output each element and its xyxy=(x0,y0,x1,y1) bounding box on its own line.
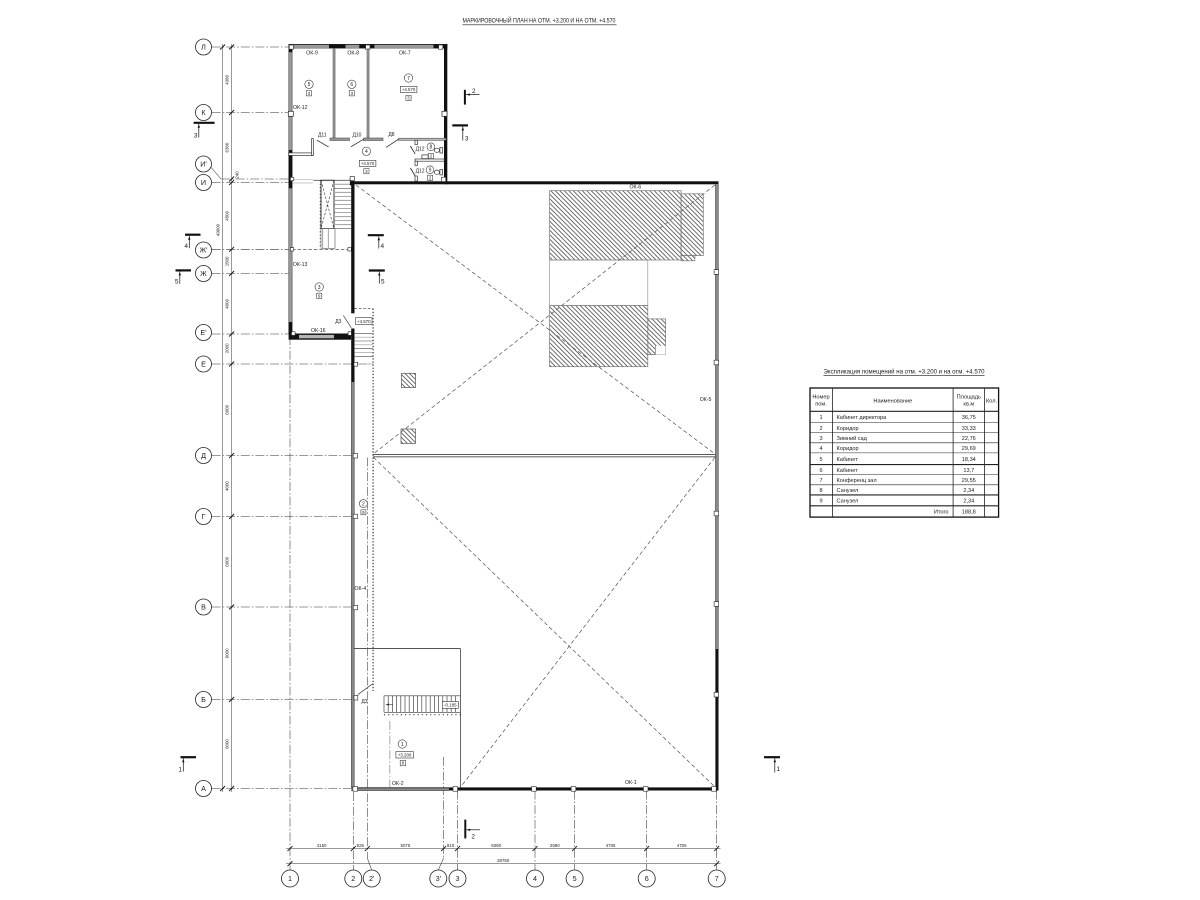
svg-text:Коридор: Коридор xyxy=(837,446,859,452)
svg-text:5: 5 xyxy=(308,82,311,88)
svg-text:И: И xyxy=(201,178,206,187)
svg-text:49000: 49000 xyxy=(216,223,221,236)
svg-text:Е: Е xyxy=(201,360,206,369)
svg-text:Кабинет: Кабинет xyxy=(837,468,859,474)
svg-text:Д8: Д8 xyxy=(388,132,394,138)
svg-text:3: 3 xyxy=(318,285,321,291)
svg-text:ОК-4: ОК-4 xyxy=(355,586,367,592)
svg-text:2,34: 2,34 xyxy=(963,488,974,494)
svg-text:пом.: пом. xyxy=(815,402,827,408)
svg-text:И': И' xyxy=(200,160,207,169)
svg-text:28750: 28750 xyxy=(497,858,510,863)
svg-text:29,69: 29,69 xyxy=(962,446,976,452)
svg-text:Площадь: Площадь xyxy=(957,394,981,400)
svg-text:ОК-5: ОК-5 xyxy=(700,397,712,403)
svg-text:-0.185: -0.185 xyxy=(444,703,457,708)
svg-text:2: 2 xyxy=(351,874,355,883)
svg-text:3: 3 xyxy=(194,132,198,139)
svg-text:33,33: 33,33 xyxy=(962,426,976,432)
svg-text:4: 4 xyxy=(533,874,537,883)
svg-text:5: 5 xyxy=(573,874,577,883)
svg-text:Д11: Д11 xyxy=(318,133,327,139)
svg-text:ОК-2: ОК-2 xyxy=(392,781,404,787)
svg-text:22,76: 22,76 xyxy=(962,436,976,442)
svg-text:6000: 6000 xyxy=(225,648,230,658)
svg-text:1: 1 xyxy=(777,766,781,773)
svg-text:А: А xyxy=(201,784,206,793)
svg-text:ОК-12: ОК-12 xyxy=(293,105,308,111)
svg-text:Д12: Д12 xyxy=(416,146,425,152)
svg-text:5: 5 xyxy=(175,278,179,285)
svg-text:9: 9 xyxy=(429,168,432,174)
svg-text:8: 8 xyxy=(819,488,822,494)
svg-text:Г: Г xyxy=(202,512,206,521)
svg-text:5090: 5090 xyxy=(491,843,501,848)
svg-text:4: 4 xyxy=(365,149,368,155)
svg-text:1: 1 xyxy=(179,766,183,773)
svg-text:Кабинет: Кабинет xyxy=(837,457,859,463)
svg-text:Наименование: Наименование xyxy=(873,399,912,405)
svg-text:1500: 1500 xyxy=(225,256,230,266)
svg-text:2590: 2590 xyxy=(550,843,560,848)
svg-text:+3.200: +3.200 xyxy=(398,753,412,758)
svg-text:Д10: Д10 xyxy=(353,133,362,139)
svg-text:Д3: Д3 xyxy=(335,319,341,325)
svg-text:2: 2 xyxy=(471,834,475,841)
svg-text:18,34: 18,34 xyxy=(962,457,976,463)
svg-text:Зимний сад: Зимний сад xyxy=(837,435,868,442)
svg-text:6: 6 xyxy=(645,874,649,883)
svg-text:13,7: 13,7 xyxy=(963,468,974,474)
svg-text:240: 240 xyxy=(235,171,240,179)
svg-text:9: 9 xyxy=(819,499,822,505)
svg-text:Ж': Ж' xyxy=(199,246,208,255)
svg-text:6000: 6000 xyxy=(225,404,230,414)
svg-text:6: 6 xyxy=(350,82,353,88)
svg-text:3': 3' xyxy=(436,874,442,883)
svg-text:+4.570: +4.570 xyxy=(361,161,375,166)
svg-text:Коридор: Коридор xyxy=(837,426,859,432)
svg-text:ОК-9: ОК-9 xyxy=(306,51,318,57)
svg-text:Кабинет директора: Кабинет директора xyxy=(837,415,888,421)
svg-text:2': 2' xyxy=(369,874,375,883)
svg-text:3: 3 xyxy=(819,436,822,442)
svg-text:2: 2 xyxy=(819,426,822,432)
svg-text:8: 8 xyxy=(430,145,433,151)
svg-text:кв.м: кв.м xyxy=(963,402,974,408)
svg-text:Д12: Д12 xyxy=(416,168,425,174)
svg-text:4: 4 xyxy=(819,446,822,452)
svg-text:6: 6 xyxy=(819,468,822,474)
svg-text:6000: 6000 xyxy=(225,556,230,566)
svg-text:4150: 4150 xyxy=(317,843,327,848)
svg-text:4705: 4705 xyxy=(677,843,687,848)
svg-text:Итого: Итого xyxy=(934,509,949,515)
svg-text:6380: 6380 xyxy=(225,142,230,152)
svg-text:4500: 4500 xyxy=(225,210,230,220)
svg-text:3: 3 xyxy=(456,874,460,883)
svg-text:2: 2 xyxy=(362,501,365,507)
svg-text:4: 4 xyxy=(184,243,188,250)
svg-text:3: 3 xyxy=(465,135,469,142)
svg-text:5: 5 xyxy=(381,278,385,285)
svg-text:Экспликация помещений на отм.: Экспликация помещений на отм. +3.200 и н… xyxy=(824,368,986,375)
svg-text:188,8: 188,8 xyxy=(962,509,976,515)
svg-text:925: 925 xyxy=(357,843,365,848)
svg-text:4000: 4000 xyxy=(225,298,230,308)
svg-text:7: 7 xyxy=(715,874,719,883)
svg-text:Конференц зал: Конференц зал xyxy=(837,478,877,484)
svg-text:Кол.: Кол. xyxy=(986,399,998,405)
svg-text:ОК-13: ОК-13 xyxy=(293,262,308,268)
svg-text:Санузел: Санузел xyxy=(837,488,859,494)
svg-text:Б: Б xyxy=(201,695,206,704)
svg-text:Санузел: Санузел xyxy=(837,499,859,505)
svg-text:Л: Л xyxy=(201,43,206,52)
svg-text:+4.570: +4.570 xyxy=(357,319,371,324)
svg-text:36,75: 36,75 xyxy=(962,415,976,421)
svg-text:29,55: 29,55 xyxy=(962,478,976,484)
svg-text:4: 4 xyxy=(381,243,385,250)
svg-text:ОК-8: ОК-8 xyxy=(347,51,359,57)
svg-text:+4.570: +4.570 xyxy=(402,87,416,92)
svg-text:ОК-7: ОК-7 xyxy=(399,51,411,57)
svg-text:ОК-16: ОК-16 xyxy=(311,328,326,334)
svg-text:В: В xyxy=(201,603,206,612)
svg-text:910: 910 xyxy=(447,843,455,848)
svg-text:7: 7 xyxy=(407,76,410,82)
svg-text:Номер: Номер xyxy=(812,394,829,400)
svg-text:4380: 4380 xyxy=(225,74,230,84)
svg-text:ОК-1: ОК-1 xyxy=(625,780,637,786)
svg-text:2000: 2000 xyxy=(225,343,230,353)
svg-text:1: 1 xyxy=(401,742,404,748)
svg-text:1: 1 xyxy=(288,874,292,883)
svg-text:4705: 4705 xyxy=(606,843,616,848)
svg-text:ОК-6: ОК-6 xyxy=(629,185,641,191)
svg-text:2: 2 xyxy=(472,88,476,95)
svg-text:5075: 5075 xyxy=(401,843,411,848)
svg-text:Е': Е' xyxy=(200,328,207,337)
svg-text:1: 1 xyxy=(819,415,822,421)
svg-text:6000: 6000 xyxy=(225,739,230,749)
svg-text:Д3: Д3 xyxy=(361,699,367,705)
svg-text:4000: 4000 xyxy=(225,481,230,491)
svg-text:7: 7 xyxy=(819,478,822,484)
svg-text:Д: Д xyxy=(201,451,206,460)
svg-text:2,34: 2,34 xyxy=(963,499,974,505)
svg-text:МАРКИРОВОЧНЫЙ ПЛАН НА ОТМ. +3.: МАРКИРОВОЧНЫЙ ПЛАН НА ОТМ. +3.200 И НА О… xyxy=(463,17,616,25)
svg-text:5: 5 xyxy=(819,457,822,463)
svg-text:Ж: Ж xyxy=(200,269,207,278)
